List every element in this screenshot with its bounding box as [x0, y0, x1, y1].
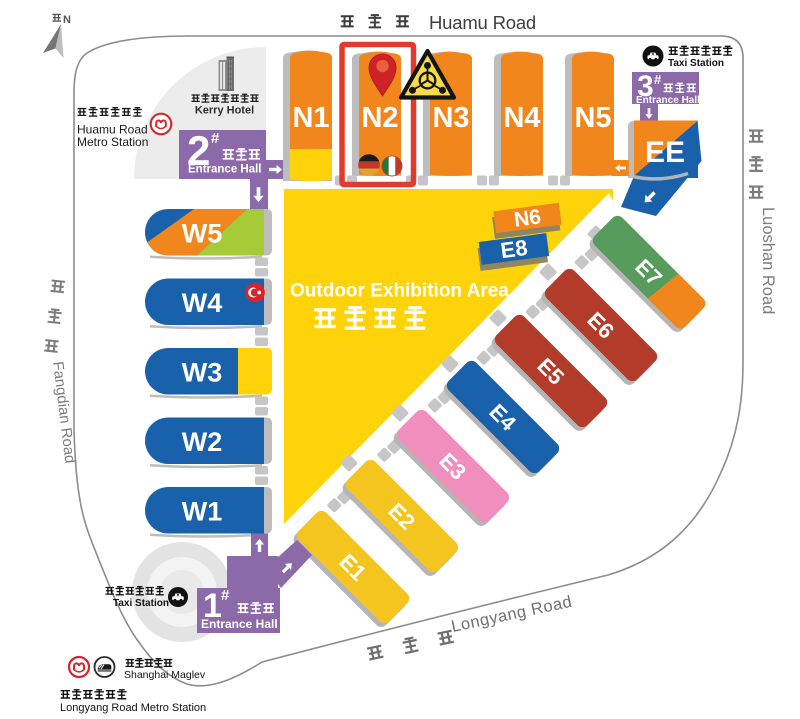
- svg-text:Luoshan Road: Luoshan Road: [759, 207, 777, 314]
- svg-text:#: #: [221, 587, 230, 604]
- svg-text:Taxi Station: Taxi Station: [668, 58, 724, 69]
- svg-text:#: #: [654, 72, 662, 87]
- svg-text:N4: N4: [503, 102, 540, 134]
- svg-text:Outdoor Exhibition Area: Outdoor Exhibition Area: [290, 281, 509, 302]
- svg-text:N6: N6: [513, 205, 543, 231]
- svg-text:N: N: [63, 14, 71, 26]
- svg-text:W5: W5: [182, 219, 223, 249]
- svg-text:W2: W2: [182, 427, 223, 457]
- svg-text:Entrance Hall: Entrance Hall: [188, 164, 262, 176]
- svg-text:#: #: [211, 130, 220, 147]
- svg-text:Longyang Road Metro Station: Longyang Road Metro Station: [60, 702, 206, 714]
- svg-text:EE: EE: [645, 136, 685, 169]
- svg-text:N1: N1: [292, 102, 329, 134]
- svg-text:N2: N2: [361, 102, 398, 134]
- svg-text:W1: W1: [182, 497, 223, 527]
- svg-text:W4: W4: [182, 288, 223, 318]
- svg-text:Kerry Hotel: Kerry Hotel: [195, 105, 254, 117]
- svg-text:E8: E8: [499, 235, 529, 263]
- svg-text:Huamu Road: Huamu Road: [429, 12, 536, 33]
- svg-text:N5: N5: [574, 102, 611, 134]
- svg-text:Entrance Hall: Entrance Hall: [201, 617, 278, 631]
- svg-text:Taxi Station: Taxi Station: [113, 598, 169, 609]
- svg-text:Metro Station: Metro Station: [77, 135, 148, 149]
- svg-text:N3: N3: [432, 102, 469, 134]
- svg-text:Entrance Hall: Entrance Hall: [636, 95, 700, 106]
- svg-text:Shanghai Maglev: Shanghai Maglev: [124, 669, 206, 681]
- svg-text:W3: W3: [182, 358, 223, 388]
